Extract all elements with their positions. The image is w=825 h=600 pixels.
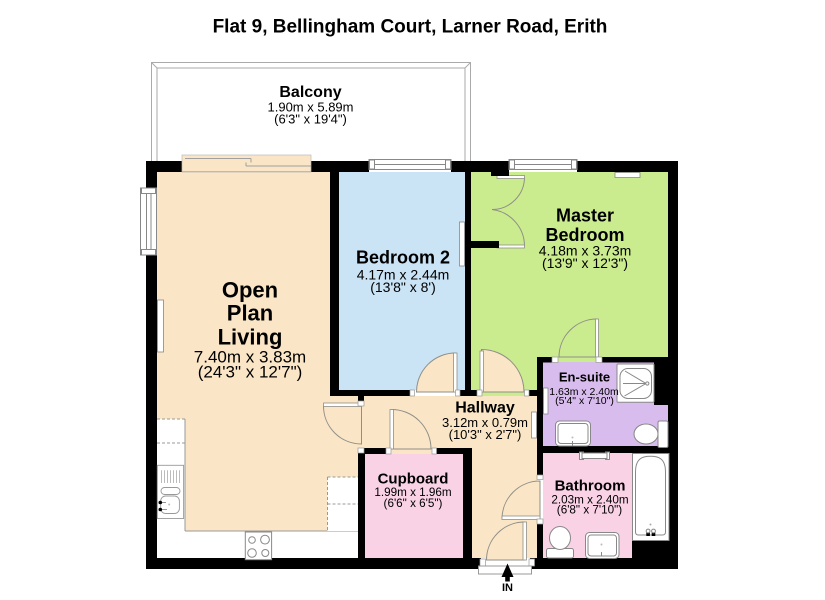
svg-text:(6'6" x 6'5"): (6'6" x 6'5") xyxy=(384,497,443,510)
svg-text:Open: Open xyxy=(222,278,278,303)
svg-text:Master: Master xyxy=(556,206,614,226)
svg-text:Cupboard: Cupboard xyxy=(378,471,449,488)
svg-text:En-suite: En-suite xyxy=(559,370,610,385)
svg-text:Hallway: Hallway xyxy=(455,400,515,417)
svg-text:Flat 9, Bellingham Court, Larn: Flat 9, Bellingham Court, Larner Road, E… xyxy=(213,17,608,38)
svg-text:Bathroom: Bathroom xyxy=(555,478,626,495)
svg-text:(13'9" x 12'3"): (13'9" x 12'3") xyxy=(542,255,628,271)
svg-text:IN: IN xyxy=(502,582,513,594)
svg-text:Living: Living xyxy=(218,325,283,350)
svg-text:(13'8" x 8'): (13'8" x 8') xyxy=(370,279,436,295)
svg-text:(10'3" x 2'7"): (10'3" x 2'7") xyxy=(449,427,522,442)
svg-text:Plan: Plan xyxy=(227,301,273,326)
svg-text:Balcony: Balcony xyxy=(279,84,341,101)
svg-text:(6'3" x 19'4"): (6'3" x 19'4") xyxy=(274,112,347,127)
svg-text:(5'4" x 7'10"): (5'4" x 7'10") xyxy=(555,395,614,407)
svg-text:Bedroom 2: Bedroom 2 xyxy=(356,248,450,268)
svg-text:(24'3" x 12'7"): (24'3" x 12'7") xyxy=(198,363,303,382)
svg-text:(6'8" x 7'10"): (6'8" x 7'10") xyxy=(557,504,622,517)
